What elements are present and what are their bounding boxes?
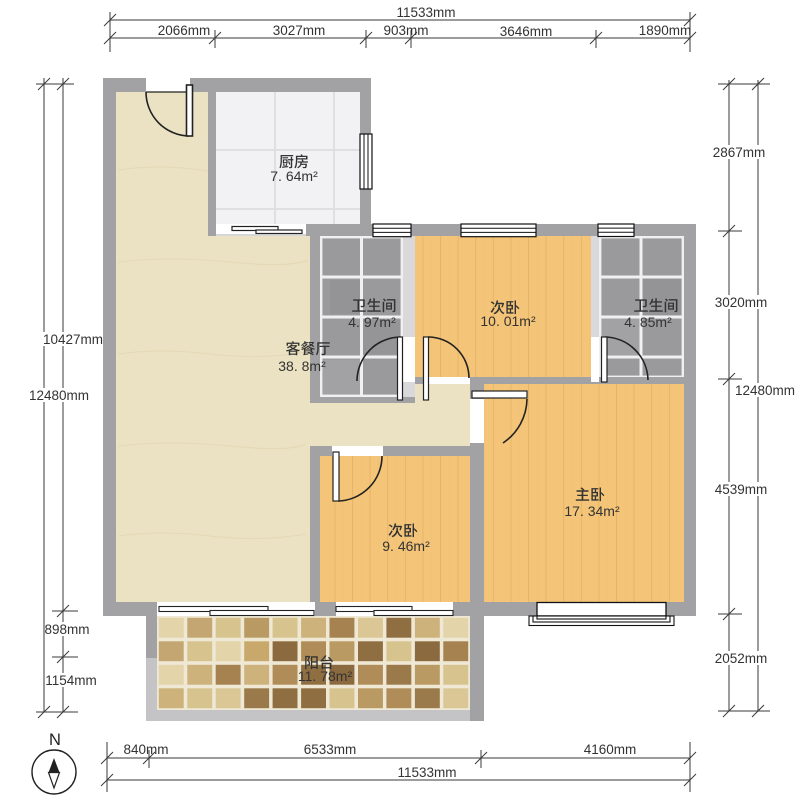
svg-text:3027mm: 3027mm [273,23,326,38]
svg-text:2066mm: 2066mm [158,23,211,38]
svg-text:1154mm: 1154mm [45,673,97,688]
svg-text:N: N [49,731,61,749]
svg-text:4. 97m²: 4. 97m² [348,314,396,330]
svg-text:840mm: 840mm [123,742,168,757]
svg-text:903mm: 903mm [383,23,428,38]
svg-text:12480mm: 12480mm [29,388,89,403]
svg-text:10. 01m²: 10. 01m² [480,313,536,329]
svg-text:12480mm: 12480mm [735,383,795,398]
svg-text:11. 78m²: 11. 78m² [298,668,353,684]
svg-text:1890mm: 1890mm [639,23,692,38]
svg-text:38. 8m²: 38. 8m² [278,358,326,374]
svg-text:4539mm: 4539mm [715,482,768,497]
svg-text:6533mm: 6533mm [304,742,357,757]
svg-text:898mm: 898mm [44,622,89,637]
svg-text:4160mm: 4160mm [584,742,637,757]
svg-text:3020mm: 3020mm [715,295,768,310]
svg-text:3646mm: 3646mm [500,24,553,39]
svg-text:4. 85m²: 4. 85m² [624,314,672,330]
svg-text:2867mm: 2867mm [713,145,766,160]
svg-text:11533mm: 11533mm [396,5,455,20]
svg-text:10427mm: 10427mm [43,332,103,347]
svg-text:7. 64m²: 7. 64m² [270,168,318,184]
svg-text:2052mm: 2052mm [715,651,768,666]
svg-text:9. 46m²: 9. 46m² [382,538,430,554]
svg-text:17. 34m²: 17. 34m² [564,503,620,519]
svg-text:11533mm: 11533mm [397,765,456,780]
